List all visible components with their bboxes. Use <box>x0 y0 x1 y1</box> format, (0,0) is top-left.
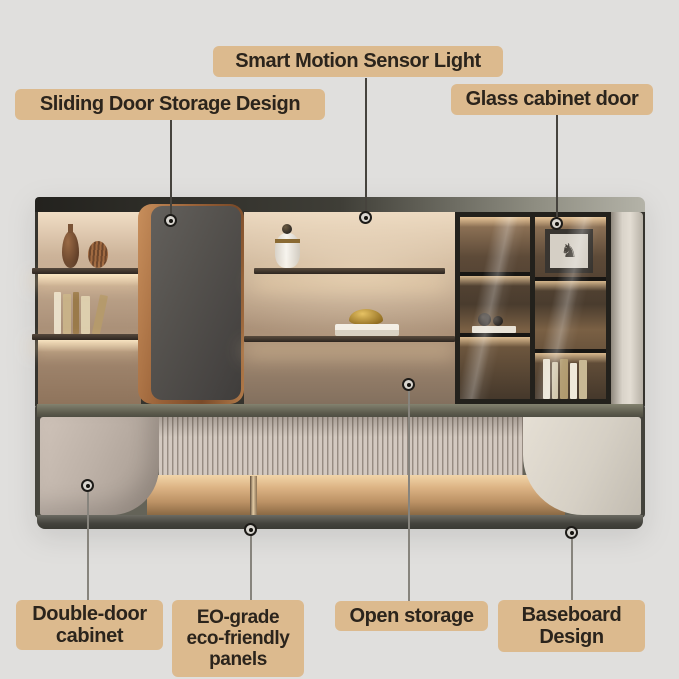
shelf-backlight <box>460 276 530 286</box>
decor-sphere <box>493 316 503 326</box>
upper-right-side-panel <box>611 212 643 404</box>
glass-shelf <box>535 349 606 353</box>
decor-book <box>92 294 108 335</box>
smart-motion-marker-icon <box>359 211 372 224</box>
glass-door-pane-right: ♞ <box>535 217 606 399</box>
decor-book <box>73 292 79 334</box>
horse-picture-frame: ♞ <box>545 229 593 273</box>
decor-book-stack <box>335 324 399 336</box>
floating-shelf <box>254 268 445 274</box>
shelf-board <box>32 334 145 340</box>
decor-book <box>579 360 587 399</box>
shelf-backlight <box>535 281 606 291</box>
callout-label-open-storage: Open storage <box>335 601 488 631</box>
shelf-board <box>32 268 145 274</box>
niche-divider <box>250 476 257 517</box>
base-top-trim <box>37 404 643 417</box>
decor-vase <box>88 241 108 268</box>
eo-grade-marker-icon <box>244 523 257 536</box>
base-left-door <box>40 417 159 515</box>
product-diagram-canvas: ♞ <box>0 0 679 679</box>
decor-book <box>63 294 71 334</box>
glass-door-marker-icon <box>550 217 563 230</box>
decor-book <box>560 359 568 399</box>
decor-books <box>543 359 601 399</box>
open-niche <box>147 475 565 517</box>
callout-label-smart-motion-sensor-light: Smart Motion Sensor Light <box>213 46 503 77</box>
glass-door-callout-line <box>556 115 558 218</box>
wall-cabinet-unit: ♞ <box>35 197 645 532</box>
shelf-backlight <box>460 217 530 227</box>
decor-white-vase <box>275 233 300 268</box>
base-fluted-panel <box>159 417 523 475</box>
cabinet-top-frame <box>35 197 645 212</box>
smart-motion-callout-line <box>365 78 367 212</box>
glass-shelf <box>535 277 606 281</box>
decor-book <box>552 362 558 399</box>
decor-book <box>81 296 90 334</box>
glass-shelf <box>460 272 530 276</box>
glass-door-pane-left <box>460 217 530 399</box>
decor-sphere <box>478 313 491 326</box>
open-storage-callout-line <box>408 391 410 602</box>
floating-shelf <box>244 336 455 342</box>
left-open-shelf-unit <box>38 212 141 404</box>
baseboard-marker-icon <box>565 526 578 539</box>
double-door-marker-icon <box>81 479 94 492</box>
decor-book <box>570 363 577 399</box>
baseboard-trim <box>37 515 643 529</box>
shelf-backlight <box>535 217 606 227</box>
callout-label-glass-cabinet-door: Glass cabinet door <box>451 84 653 115</box>
decor-vase <box>62 231 79 268</box>
shelf-backlight <box>460 337 530 347</box>
decor-book <box>543 359 550 399</box>
shelf-backlight <box>38 274 141 286</box>
shelf-backlight <box>535 353 606 363</box>
shelf-backlight <box>38 340 141 352</box>
callout-label-double-door-cabinet: Double-door cabinet <box>16 600 163 650</box>
callout-label-eo-grade-panels: EO-grade eco-friendly panels <box>172 600 304 677</box>
sliding-door-callout-line <box>170 120 172 215</box>
glass-cabinet-frame: ♞ <box>455 212 611 404</box>
glass-shelf <box>460 333 530 337</box>
callout-label-baseboard-design: Baseboard Design <box>498 600 645 652</box>
callout-label-sliding-door-storage: Sliding Door Storage Design <box>15 89 325 120</box>
sliding-door-marker-icon <box>164 214 177 227</box>
open-storage-marker-icon <box>402 378 415 391</box>
decor-book <box>472 326 516 333</box>
double-door-callout-line <box>87 492 89 600</box>
decor-book <box>54 292 61 334</box>
horse-icon: ♞ <box>560 242 577 261</box>
decor-gold-bowl <box>349 309 383 325</box>
eo-grade-callout-line <box>250 536 252 600</box>
sliding-door <box>151 206 241 400</box>
decor-books <box>54 292 128 334</box>
baseboard-callout-line <box>571 539 573 600</box>
